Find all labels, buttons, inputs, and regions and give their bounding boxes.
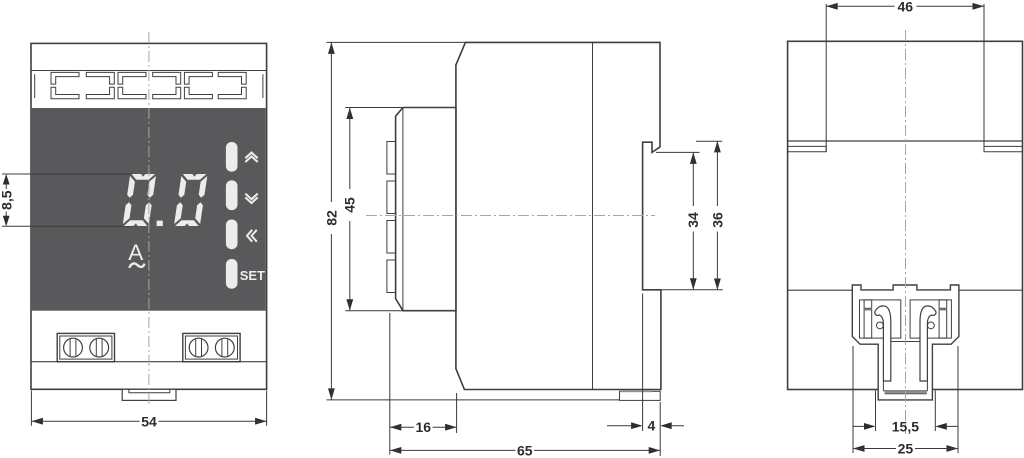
svg-text:65: 65 (517, 442, 533, 458)
svg-text:8,5: 8,5 (0, 190, 14, 210)
svg-text:16: 16 (416, 419, 432, 435)
svg-text:A: A (128, 240, 143, 265)
svg-text:46: 46 (898, 0, 914, 14)
svg-text:15,5: 15,5 (892, 418, 919, 434)
svg-text:4: 4 (648, 418, 656, 434)
svg-text:SET: SET (240, 268, 265, 283)
svg-text:36: 36 (709, 212, 725, 228)
svg-text:54: 54 (141, 413, 157, 429)
svg-text:34: 34 (685, 212, 701, 228)
svg-text:25: 25 (898, 441, 914, 457)
svg-text:82: 82 (323, 210, 339, 226)
svg-text:45: 45 (342, 197, 358, 213)
